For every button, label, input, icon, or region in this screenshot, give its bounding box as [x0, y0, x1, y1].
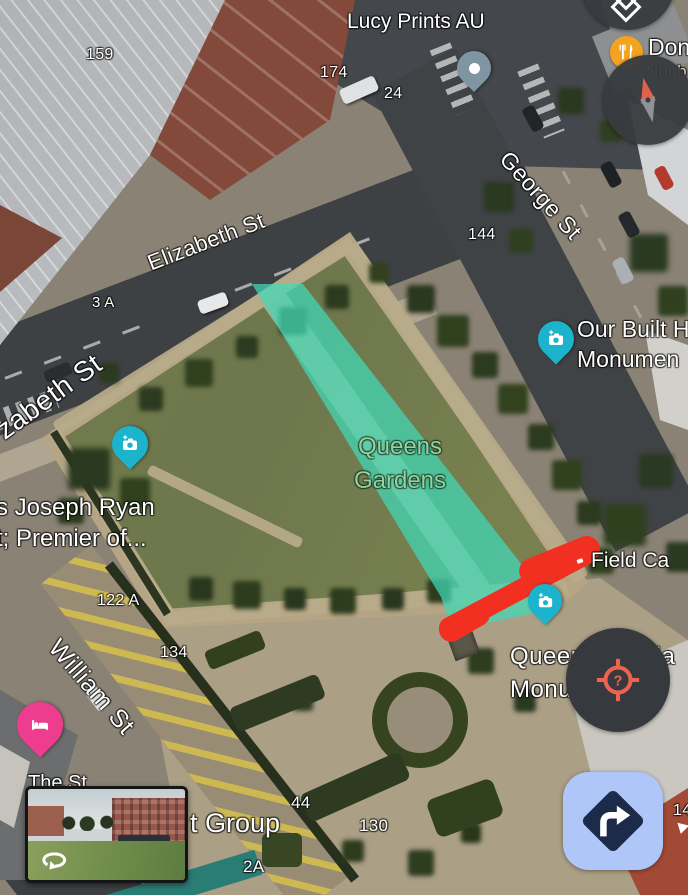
- place-pin[interactable]: [450, 44, 498, 92]
- car: [617, 210, 641, 239]
- camera-icon: [528, 584, 562, 618]
- poi-label-lucy-prints[interactable]: Lucy Prints AU: [347, 10, 485, 34]
- park-label-queens-gardens[interactable]: Queens Gardens: [325, 430, 475, 498]
- poi-our-built-line2: Monumen: [577, 346, 679, 372]
- camera-icon: [538, 321, 574, 357]
- house-number: 174: [320, 64, 348, 82]
- lane-dashes: [234, 235, 375, 292]
- house-number: 159: [86, 46, 114, 64]
- camera-icon: [112, 426, 148, 462]
- hedge-row: [203, 629, 266, 670]
- photo-pin[interactable]: [105, 419, 156, 470]
- hedge-row: [299, 751, 412, 823]
- park-label-line2: Gardens: [354, 467, 446, 494]
- poi-label-t-group[interactable]: t Group: [190, 808, 280, 839]
- crosswalk: [517, 64, 564, 139]
- hedge-row: [425, 777, 504, 839]
- poi-label-joseph-ryan[interactable]: s Joseph Ryan t; Premier of...: [0, 492, 155, 554]
- place-pin-dot-icon: [457, 51, 491, 85]
- turn-right-arrow-icon: [590, 798, 636, 844]
- car: [521, 104, 545, 133]
- layers-icon: [613, 0, 643, 24]
- intersection-road: [0, 0, 688, 220]
- house-number: 134: [160, 644, 188, 662]
- poi-ryan-line2: t; Premier of...: [0, 525, 147, 552]
- poi-ryan-line1: s Joseph Ryan: [0, 494, 155, 521]
- poi-label-field-cannon[interactable]: Field Ca: [591, 549, 669, 573]
- circular-garden-bed: [372, 672, 468, 768]
- poi-label-our-built-heritage[interactable]: Our Built H Monumen: [577, 314, 688, 374]
- street-label-george: George St: [494, 146, 587, 245]
- rotate-arrow-icon: [40, 849, 74, 876]
- svg-text:?: ?: [614, 673, 623, 689]
- streetview-building-left: [28, 806, 64, 836]
- bed-icon: [17, 702, 63, 748]
- compass-needle-icon: [632, 74, 664, 131]
- park-path: [146, 464, 304, 548]
- house-number: 130: [359, 816, 388, 836]
- house-number: 2A: [243, 857, 264, 877]
- house-number: 3 A: [92, 294, 115, 311]
- streetview-trees: [62, 815, 118, 831]
- poi-our-built-line1: Our Built H: [577, 316, 688, 342]
- car: [197, 291, 230, 314]
- hotel-pin[interactable]: [7, 692, 72, 757]
- photo-pin[interactable]: [531, 314, 582, 365]
- locate-question-icon: ?: [593, 655, 643, 710]
- street-label-elizabeth-partial: zabeth St: [0, 348, 108, 446]
- car: [599, 160, 623, 189]
- layers-button[interactable]: [581, 0, 675, 30]
- google-maps-satellite-view[interactable]: Lucy Prints AU 159 174 24 144 3 A 122 A …: [0, 0, 688, 895]
- house-number: 44: [291, 793, 311, 813]
- one-way-arrow-icon: [675, 823, 688, 836]
- tree-canopies: [0, 0, 2, 2]
- compass-button[interactable]: [603, 55, 688, 145]
- house-number: 122 A: [97, 592, 139, 610]
- photo-pin[interactable]: [521, 577, 569, 625]
- park-label-line1: Queens: [358, 433, 442, 460]
- car: [653, 165, 675, 192]
- house-number: 14: [673, 802, 688, 820]
- hedge-row: [229, 673, 327, 733]
- street-label-elizabeth: Elizabeth St: [144, 208, 269, 276]
- streetview-thumbnail[interactable]: [25, 786, 188, 883]
- car: [611, 256, 635, 285]
- house-number: 24: [384, 85, 402, 103]
- recenter-button[interactable]: ?: [566, 628, 670, 732]
- directions-button[interactable]: [563, 772, 663, 870]
- house-number: 144: [468, 226, 496, 244]
